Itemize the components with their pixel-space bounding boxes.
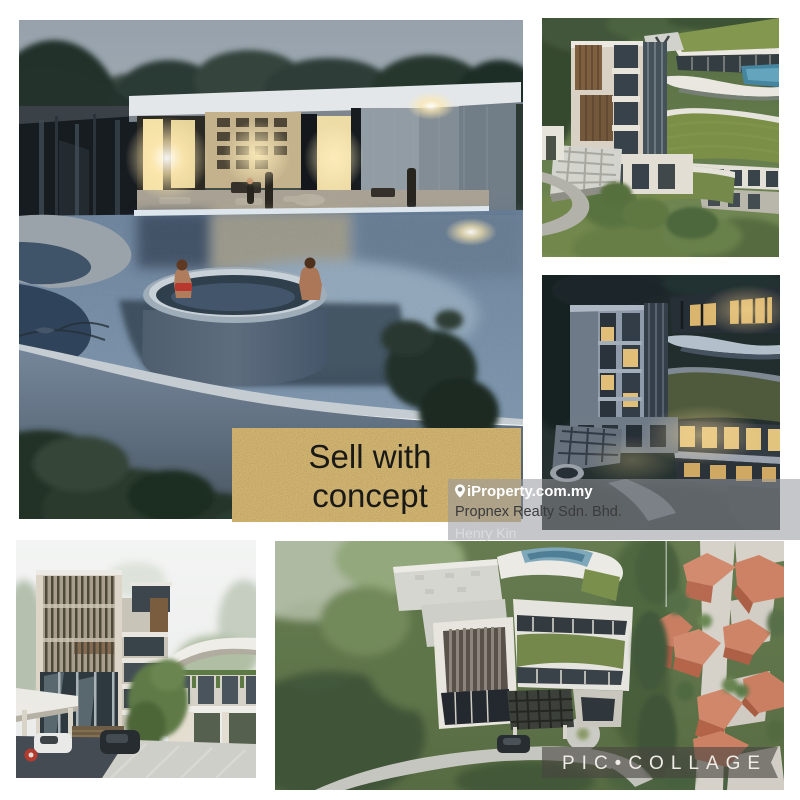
svg-text:PIC•COLLAGE: PIC•COLLAGE: [562, 753, 767, 774]
